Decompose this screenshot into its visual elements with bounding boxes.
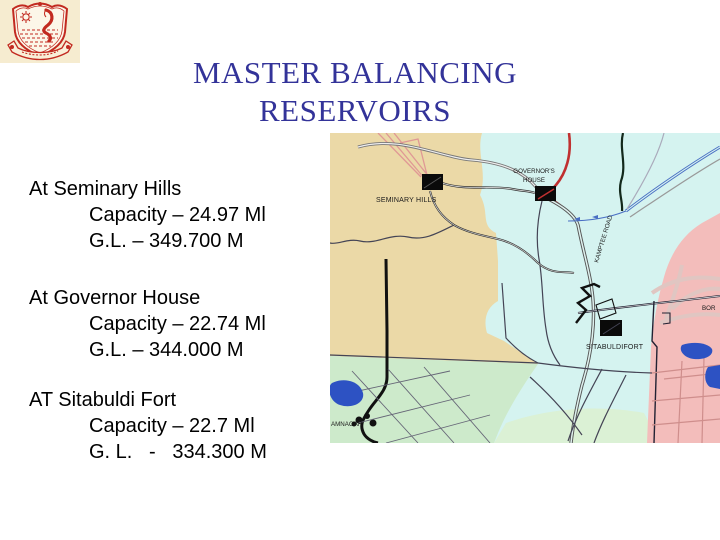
slide-title-line2: RESERVOIRS [120,92,590,130]
city-map-image: SEMINARY HILLS GOVERNOR'S HOUSE SITABULD… [330,133,720,443]
reservoir-block-governor-house: At Governor House Capacity – 22.74 Ml G.… [0,285,332,363]
reservoir-ground-level: G.L. – 344.000 M [0,337,332,363]
reservoir-block-sitabuldi-fort: AT Sitabuldi Fort Capacity – 22.7 Ml G. … [0,387,332,465]
map-label-governors-house-1: GOVERNOR'S [513,168,554,175]
municipal-crest-logo [0,0,80,63]
slide-title-line1: MASTER BALANCING [120,54,590,92]
reservoir-ground-level: G.L. – 349.700 M [0,228,332,254]
slide-title: MASTER BALANCING RESERVOIRS [120,54,590,130]
reservoir-block-seminary-hills: At Seminary Hills Capacity – 24.97 Ml G.… [0,176,332,254]
map-label-bor: BOR [702,305,716,312]
map-label-governors-house-2: HOUSE [523,177,545,184]
reservoir-name: At Governor House [0,285,332,311]
reservoir-capacity: Capacity – 22.7 Ml [0,413,332,439]
presentation-slide: MASTER BALANCING RESERVOIRS At Seminary … [0,0,720,540]
map-marker-sitabuldi-fort [600,320,622,336]
map-label-ramnagar: AMNAGAR [331,421,363,428]
reservoir-capacity: Capacity – 22.74 Ml [0,311,332,337]
crest-icon [0,0,80,63]
reservoir-list: At Seminary Hills Capacity – 24.97 Ml G.… [0,176,332,496]
map-marker-governors-house [535,186,556,201]
reservoir-capacity: Capacity – 24.97 Ml [0,202,332,228]
map-label-sitabuldi-fort: SITABULDIFORT [586,344,644,351]
reservoir-name: At Seminary Hills [0,176,332,202]
reservoir-ground-level: G. L. - 334.300 M [0,439,332,465]
map-marker-seminary-hills [422,174,443,190]
reservoir-name: AT Sitabuldi Fort [0,387,332,413]
map-label-seminary-hills: SEMINARY HILLS [376,197,437,204]
